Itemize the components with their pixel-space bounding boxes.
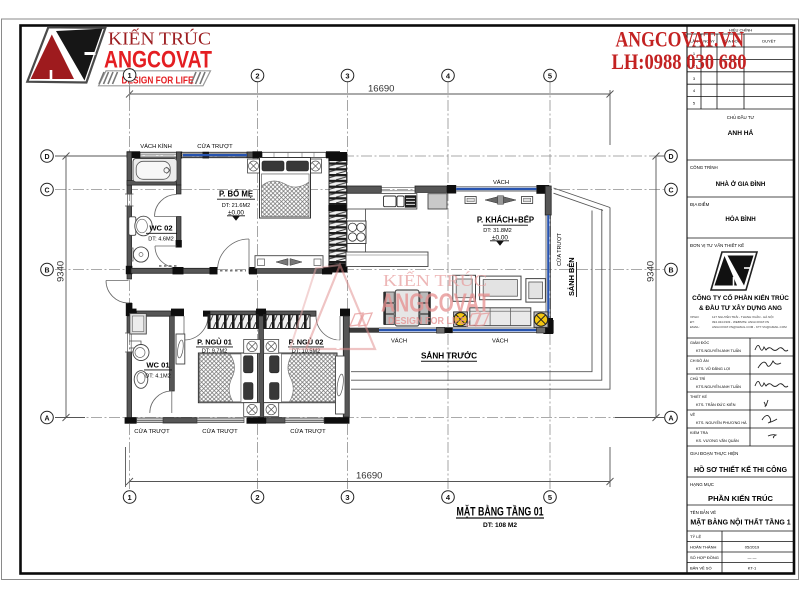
svg-text:1: 1	[128, 493, 132, 502]
svg-text:KIỂM TRA: KIỂM TRA	[690, 430, 708, 435]
svg-text:HẠNG MỤC: HẠNG MỤC	[690, 482, 714, 487]
svg-text:ANGCOVAT: ANGCOVAT	[104, 47, 212, 74]
svg-text:CÔNG TRÌNH: CÔNG TRÌNH	[690, 165, 718, 170]
svg-text:GIAI ĐOẠN THỰC HIỆN: GIAI ĐOẠN THỰC HIỆN	[690, 451, 738, 456]
svg-text:& ĐẦU TƯ XÂY DỰNG ANG: & ĐẦU TƯ XÂY DỰNG ANG	[699, 302, 782, 312]
svg-text:CỬA TRƯỢT: CỬA TRƯỢT	[290, 428, 326, 435]
svg-text:±0.00: ±0.00	[492, 234, 508, 241]
svg-text:9340: 9340	[56, 261, 67, 282]
svg-text:DT: 4.1M2: DT: 4.1M2	[145, 374, 171, 380]
svg-text:SẢNH TRƯỚC: SẢNH TRƯỚC	[421, 350, 477, 361]
svg-text:2: 2	[255, 493, 259, 502]
svg-text:WC 02: WC 02	[149, 224, 172, 233]
svg-text:P. KHÁCH+BẾP: P. KHÁCH+BẾP	[477, 215, 534, 225]
svg-text:D: D	[44, 154, 49, 161]
svg-text:KTS.NGUYỄN ANH TUẤN: KTS.NGUYỄN ANH TUẤN	[696, 384, 741, 389]
svg-text:P. BỐ MẸ: P. BỐ MẸ	[219, 189, 253, 199]
svg-text:±0.00: ±0.00	[228, 209, 244, 216]
svg-text:CH ĐỒ ÁN: CH ĐỒ ÁN	[690, 358, 709, 363]
svg-text:DUYỆT: DUYỆT	[762, 39, 776, 44]
svg-text:KT-1: KT-1	[748, 566, 757, 571]
svg-text:3: 3	[345, 71, 349, 80]
svg-text:C: C	[668, 187, 673, 194]
svg-text:VÁCH: VÁCH	[391, 338, 407, 345]
svg-text:CHỦ ĐẦU TƯ: CHỦ ĐẦU TƯ	[727, 115, 755, 120]
svg-text:05/2019: 05/2019	[745, 545, 760, 550]
svg-text:C: C	[44, 187, 49, 194]
svg-text:A: A	[44, 415, 49, 422]
svg-text:ANGCOVAT: ANGCOVAT	[381, 288, 490, 318]
svg-text:B: B	[668, 267, 673, 274]
svg-text:2: 2	[255, 71, 259, 80]
svg-text:VÁCH: VÁCH	[492, 338, 508, 345]
svg-text:EMAIL:: EMAIL:	[690, 325, 700, 329]
svg-text:KTS. NGUYỄN PHƯƠNG HÀ: KTS. NGUYỄN PHƯƠNG HÀ	[696, 420, 747, 425]
svg-text:127 NGUYỄN TRÃI - THANH XUÂN -: 127 NGUYỄN TRÃI - THANH XUÂN - HÀ NỘI	[712, 314, 774, 319]
svg-text:TỶ LỆ: TỶ LỆ	[690, 534, 701, 539]
svg-text:WC 01: WC 01	[146, 360, 170, 369]
svg-text:TÊN BẢN VẼ: TÊN BẢN VẼ	[690, 510, 716, 515]
svg-text:KTS. VŨ ĐĂNG LỢI: KTS. VŨ ĐĂNG LỢI	[696, 366, 730, 371]
svg-text:3: 3	[345, 493, 349, 502]
svg-text:DESIGN FOR LIFE: DESIGN FOR LIFE	[388, 316, 466, 327]
svg-text:MẶT BẰNG NỘI THẤT TẦNG 1: MẶT BẰNG NỘI THẤT TẦNG 1	[690, 517, 790, 527]
svg-text:DT: 108 M2: DT: 108 M2	[483, 522, 517, 529]
svg-text:— —: — —	[747, 555, 756, 560]
svg-text:DT: 31.8M2: DT: 31.8M2	[483, 228, 512, 234]
svg-text:CỬA TRƯỢT: CỬA TRƯỢT	[202, 428, 238, 435]
svg-text:CỬA TRƯỢT: CỬA TRƯỢT	[556, 232, 563, 266]
svg-text:BẢN VẼ SỐ: BẢN VẼ SỐ	[690, 566, 712, 571]
svg-text:VÁCH: VÁCH	[493, 179, 509, 186]
svg-text:ANGCOVAT.VN@GMAIL.COM - KT7.VN: ANGCOVAT.VN@GMAIL.COM - KT7.VN@GMAIL.COM	[712, 325, 787, 329]
svg-text:ANH HẢ: ANH HẢ	[728, 128, 754, 137]
svg-text:5: 5	[548, 493, 552, 502]
svg-text:16690: 16690	[356, 471, 382, 482]
svg-text:CHỦ TRÌ: CHỦ TRÌ	[690, 376, 705, 381]
svg-text:CÔNG TY CỔ PHẦN KIẾN TRÚC: CÔNG TY CỔ PHẦN KIẾN TRÚC	[692, 292, 789, 302]
svg-text:MẶT BẰNG TẦNG 01: MẶT BẰNG TẦNG 01	[457, 506, 544, 519]
svg-text:4: 4	[693, 88, 696, 93]
svg-text:SẢNH BÊN: SẢNH BÊN	[567, 257, 576, 296]
svg-text:5: 5	[693, 101, 696, 106]
svg-text:HOÀN THÀNH: HOÀN THÀNH	[690, 545, 716, 550]
svg-text:GIÁM ĐỐC: GIÁM ĐỐC	[690, 340, 709, 345]
svg-text:HÒA BÌNH: HÒA BÌNH	[725, 215, 756, 223]
svg-text:16690: 16690	[368, 84, 394, 95]
svg-text:ĐT:: ĐT:	[690, 320, 695, 324]
svg-text:ANGCOVAT.VN: ANGCOVAT.VN	[616, 27, 745, 52]
svg-text:P. NGỦ 01: P. NGỦ 01	[197, 337, 232, 346]
svg-text:KTS.NGUYỄN ANH TUẤN: KTS.NGUYỄN ANH TUẤN	[696, 348, 741, 353]
svg-text:CỬA TRƯỢT: CỬA TRƯỢT	[197, 143, 233, 150]
svg-text:DT: 9.7M2: DT: 9.7M2	[202, 349, 228, 355]
svg-text:NHÀ Ở GIA ĐÌNH: NHÀ Ở GIA ĐÌNH	[716, 180, 766, 188]
svg-text:CỬA TRƯỢT: CỬA TRƯỢT	[134, 428, 170, 435]
svg-text:HỒ SƠ THIẾT KẾ THI CÔNG: HỒ SƠ THIẾT KẾ THI CÔNG	[694, 464, 788, 474]
svg-text:VPGD:: VPGD:	[690, 315, 700, 319]
svg-text:094.344.0333 - WEBSITE: ANGCOV: 094.344.0333 - WEBSITE: ANGCOVAT.VN	[712, 320, 769, 324]
svg-text:ĐỊA ĐIỂM: ĐỊA ĐIỂM	[690, 202, 710, 207]
svg-text:KTS. TRẦN ĐỨC KIÊN: KTS. TRẦN ĐỨC KIÊN	[696, 402, 736, 407]
svg-text:B: B	[44, 267, 49, 274]
svg-text:VÁCH KÍNH: VÁCH KÍNH	[140, 143, 172, 150]
svg-text:A: A	[668, 415, 673, 422]
svg-text:DT: 21.6M2: DT: 21.6M2	[222, 203, 251, 209]
svg-text:PHẦN KIẾN TRÚC: PHẦN KIẾN TRÚC	[708, 493, 773, 503]
svg-text:D: D	[668, 154, 673, 161]
svg-text:1: 1	[128, 71, 132, 80]
svg-text:THIẾT KẾ: THIẾT KẾ	[690, 394, 707, 399]
svg-text:9340: 9340	[646, 261, 657, 282]
svg-text:SỐ HỢP ĐỒNG: SỐ HỢP ĐỒNG	[690, 555, 719, 560]
svg-text:VẼ: VẼ	[690, 412, 696, 417]
svg-text:LH:0988 030 680: LH:0988 030 680	[612, 49, 747, 74]
svg-text:KS. VƯƠNG VĂN QUẢN: KS. VƯƠNG VĂN QUẢN	[696, 438, 739, 443]
svg-text:KIẾN TRÚC: KIẾN TRÚC	[108, 29, 211, 49]
svg-text:DT: 4.6M2: DT: 4.6M2	[148, 236, 174, 242]
svg-text:ĐƠN VỊ TƯ VẤN THIẾT KẾ: ĐƠN VỊ TƯ VẤN THIẾT KẾ	[690, 243, 744, 248]
svg-text:5: 5	[548, 71, 552, 80]
svg-text:3: 3	[693, 76, 696, 81]
